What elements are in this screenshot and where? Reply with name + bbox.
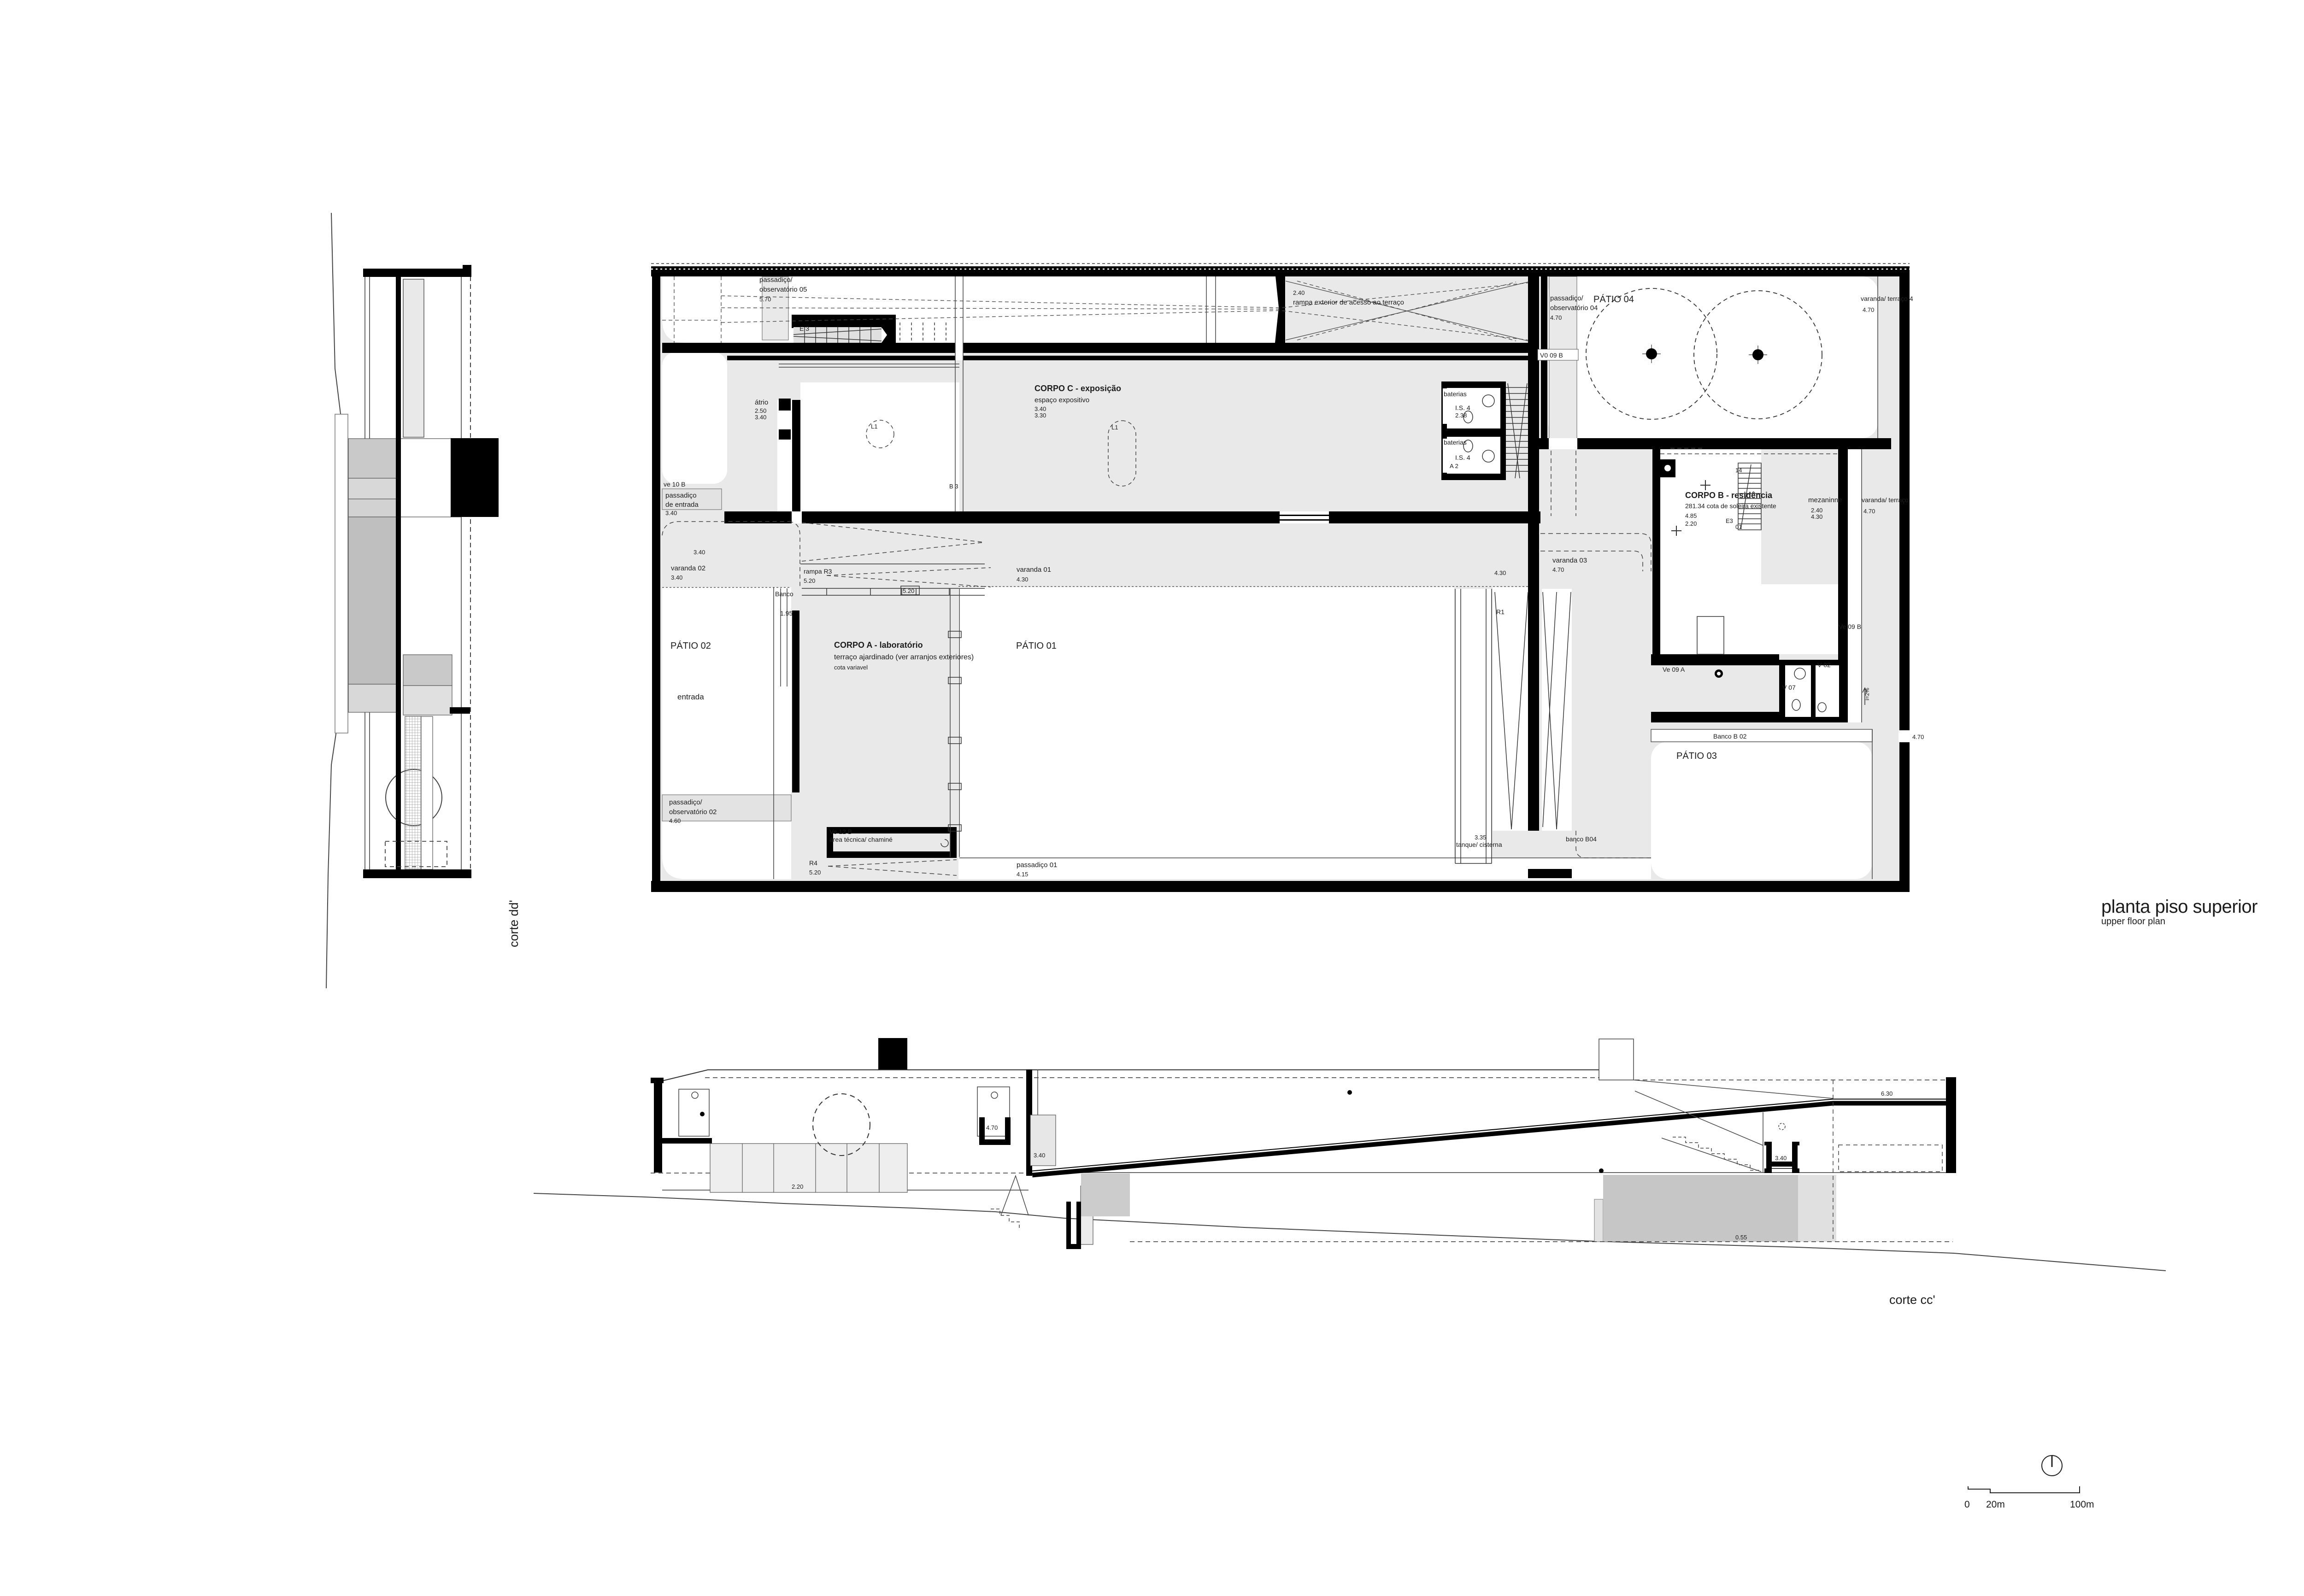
svg-text:5.20: 5.20 (903, 587, 914, 594)
svg-text:100m: 100m (2070, 1499, 2094, 1510)
svg-text:281.34 cota de soleira existen: 281.34 cota de soleira existente (1685, 502, 1776, 510)
svg-text:passadiço 01: passadiço 01 (1017, 861, 1057, 869)
svg-text:passadiço: passadiço (665, 492, 697, 499)
svg-text:1.95: 1.95 (780, 610, 793, 617)
svg-text:tanque/ cisterna: tanque/ cisterna (1456, 841, 1502, 848)
svg-text:observatório 05: observatório 05 (759, 286, 807, 293)
svg-text:2.20: 2.20 (792, 1183, 803, 1190)
svg-text:espaço expositivo: espaço expositivo (1034, 396, 1089, 404)
svg-text:CORPO C - exposição: CORPO C - exposição (1034, 384, 1121, 393)
svg-text:2.38: 2.38 (1455, 412, 1467, 419)
svg-text:4.70: 4.70 (1863, 508, 1875, 515)
svg-text:de entrada: de entrada (665, 501, 699, 509)
svg-text:4.15: 4.15 (1017, 871, 1028, 878)
svg-text:ve 10 B: ve 10 B (664, 481, 685, 488)
svg-text:5.20: 5.20 (809, 869, 821, 876)
svg-text:E3: E3 (1726, 517, 1733, 524)
svg-text:01: 01 (1735, 523, 1742, 530)
svg-text:4.70: 4.70 (986, 1124, 998, 1131)
svg-text:baterias: baterias (1444, 439, 1467, 446)
svg-text:5.20: 5.20 (804, 577, 815, 584)
svg-text:corte dd': corte dd' (507, 900, 521, 947)
svg-text:passadiço/: passadiço/ (669, 798, 703, 806)
svg-text:varanda 01: varanda 01 (1017, 566, 1051, 574)
svg-text:I.S. 4: I.S. 4 (1455, 404, 1470, 411)
svg-text:L1: L1 (871, 423, 877, 430)
svg-text:3.30: 3.30 (1034, 412, 1046, 419)
svg-text:2.40: 2.40 (1811, 507, 1822, 514)
svg-text:rampa exterior de acesso ao te: rampa exterior de acesso ao terraço (1293, 299, 1404, 306)
svg-text:3.40: 3.40 (1034, 1152, 1045, 1159)
svg-text:3.35: 3.35 (1475, 834, 1486, 841)
svg-text:4.30: 4.30 (1811, 513, 1822, 520)
svg-text:observatório 04: observatório 04 (1550, 304, 1598, 312)
svg-text:0.55: 0.55 (1735, 1234, 1747, 1241)
svg-text:Ve 12 B: Ve 12 B (829, 828, 852, 835)
svg-text:A 2: A 2 (1450, 463, 1458, 469)
svg-text:rampa R3: rampa R3 (804, 568, 832, 575)
svg-text:CORPO B - residência: CORPO B - residência (1685, 491, 1773, 500)
svg-text:3.40: 3.40 (671, 574, 682, 581)
svg-text:CORPO A - laboratório: CORPO A - laboratório (834, 640, 923, 650)
svg-text:I.S. 4: I.S. 4 (1455, 454, 1470, 461)
svg-text:Ve 09 A: Ve 09 A (1663, 666, 1685, 673)
svg-text:20m: 20m (1986, 1499, 2005, 1510)
svg-text:planta piso superior: planta piso superior (2101, 897, 2257, 917)
svg-text:cota variavel: cota variavel (834, 664, 868, 671)
svg-text:i=2%: i=2% (1864, 688, 1870, 700)
svg-text:4.70: 4.70 (1863, 306, 1874, 313)
svg-text:6.30: 6.30 (1881, 1090, 1893, 1097)
svg-text:corte cc': corte cc' (1889, 1293, 1935, 1307)
svg-text:4.85: 4.85 (1685, 512, 1697, 519)
svg-text:baterias: baterias (1444, 390, 1467, 398)
svg-text:varanda/ terraço 4: varanda/ terraço 4 (1861, 295, 1913, 302)
svg-text:E 3: E 3 (799, 325, 809, 332)
svg-text:5.70: 5.70 (759, 296, 771, 303)
svg-text:banco B04: banco B04 (1566, 835, 1597, 843)
svg-text:upper floor plan: upper floor plan (2101, 916, 2165, 927)
svg-text:varanda 02: varanda 02 (671, 564, 705, 572)
svg-text:V0 09 B: V0 09 B (1540, 352, 1563, 359)
svg-text:Ve 09 B: Ve 09 B (1839, 623, 1861, 630)
svg-text:átrio: átrio (755, 399, 768, 406)
svg-text:terraço ajardinado (ver arranj: terraço ajardinado (ver arranjos exterio… (834, 653, 974, 661)
svg-text:entrada: entrada (677, 692, 704, 701)
svg-text:área técnica/ chaminé: área técnica/ chaminé (829, 836, 893, 843)
svg-text:4.70: 4.70 (1550, 314, 1562, 321)
svg-text:varanda 03: varanda 03 (1552, 557, 1587, 564)
svg-text:PÁTIO 01: PÁTIO 01 (1016, 640, 1057, 651)
svg-text:2.40: 2.40 (1293, 289, 1305, 296)
svg-text:Banco: Banco (775, 590, 793, 598)
svg-text:PÁTIO 04: PÁTIO 04 (1593, 294, 1634, 305)
svg-text:3.40: 3.40 (665, 510, 677, 516)
svg-text:passadiço/: passadiço/ (1550, 294, 1584, 302)
svg-text:4.60: 4.60 (669, 817, 681, 824)
svg-text:R1: R1 (1496, 608, 1505, 616)
svg-text:4.30: 4.30 (1017, 576, 1028, 583)
svg-text:3.40: 3.40 (1034, 405, 1046, 412)
svg-text:PÁTIO 03: PÁTIO 03 (1676, 751, 1717, 761)
svg-text:4.30: 4.30 (1494, 569, 1506, 576)
svg-text:14: 14 (1735, 467, 1742, 474)
svg-text:2.50: 2.50 (755, 407, 766, 414)
svg-text:PÁTIO 02: PÁTIO 02 (670, 640, 711, 651)
svg-text:V 07: V 07 (1782, 684, 1796, 691)
svg-text:V 02: V 02 (1817, 661, 1831, 669)
svg-text:R4: R4 (809, 859, 817, 867)
svg-text:mezaninne: mezaninne (1808, 496, 1842, 504)
svg-text:3.40: 3.40 (694, 549, 705, 556)
svg-text:4.70: 4.70 (1552, 566, 1564, 573)
svg-text:L1: L1 (1111, 424, 1118, 431)
svg-text:2.20: 2.20 (1685, 520, 1697, 527)
svg-text:Banco B 02: Banco B 02 (1713, 733, 1747, 740)
svg-text:observatório 02: observatório 02 (669, 808, 717, 816)
svg-text:varanda/ terraço: varanda/ terraço (1862, 496, 1909, 504)
svg-text:passadiço/: passadiço/ (759, 276, 793, 284)
svg-text:B 3: B 3 (949, 483, 958, 490)
svg-text:3.40: 3.40 (1775, 1155, 1787, 1162)
svg-text:3.40: 3.40 (755, 414, 766, 421)
svg-text:4.70: 4.70 (1912, 733, 1924, 740)
svg-text:0: 0 (1964, 1499, 1970, 1510)
